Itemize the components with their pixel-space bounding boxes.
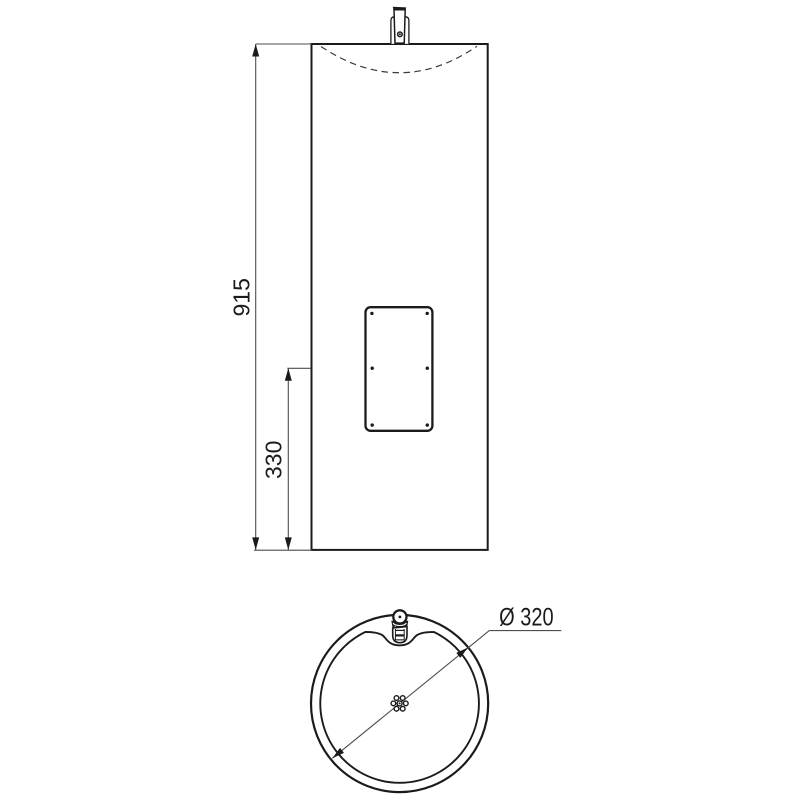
svg-text:915: 915 bbox=[229, 278, 255, 316]
svg-text:Ø 320: Ø 320 bbox=[499, 604, 553, 632]
svg-text:330: 330 bbox=[261, 441, 287, 479]
